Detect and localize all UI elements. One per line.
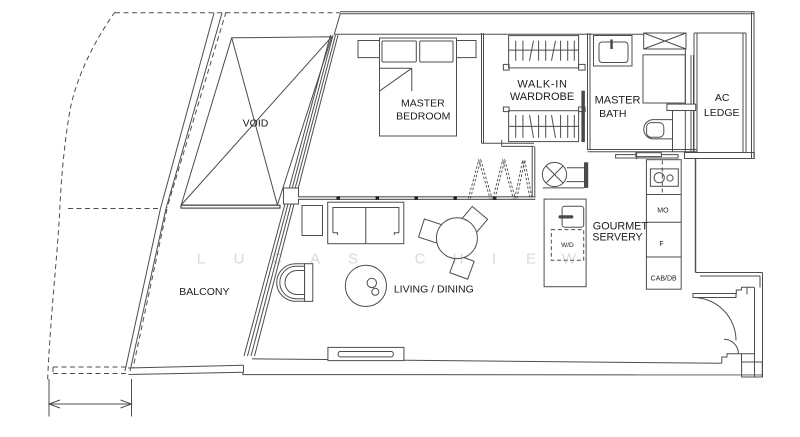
svg-text:W/D: W/D [561,242,574,249]
svg-text:W: W [562,251,577,268]
svg-text:C: C [415,251,426,268]
svg-text:I: I [492,251,496,268]
svg-text:MO: MO [657,207,669,214]
svg-text:E: E [526,251,536,268]
svg-text:GOURMET: GOURMET [593,220,649,232]
svg-text:BALCONY: BALCONY [179,286,229,298]
svg-text:U: U [234,251,245,268]
svg-text:SERVERY: SERVERY [592,232,642,244]
svg-text:BATH: BATH [599,108,626,120]
svg-text:CAB/DB: CAB/DB [651,275,677,282]
svg-text:BEDROOM: BEDROOM [396,111,450,123]
svg-text:LIVING / DINING: LIVING / DINING [394,284,474,296]
svg-text:WALK-IN: WALK-IN [517,79,567,91]
svg-text:C: C [272,251,283,268]
svg-text:AC: AC [715,92,730,104]
svg-text:F: F [659,241,663,248]
svg-text:VOID: VOID [243,118,269,130]
svg-text:WARDROBE: WARDROBE [510,91,574,103]
svg-text:MASTER: MASTER [595,94,641,106]
svg-text:LEDGE: LEDGE [704,107,740,119]
svg-text:H: H [453,251,464,268]
svg-text:S: S [348,251,358,268]
svg-text:MASTER: MASTER [401,98,445,110]
svg-text:A: A [310,251,320,268]
svg-text:L: L [197,251,205,268]
